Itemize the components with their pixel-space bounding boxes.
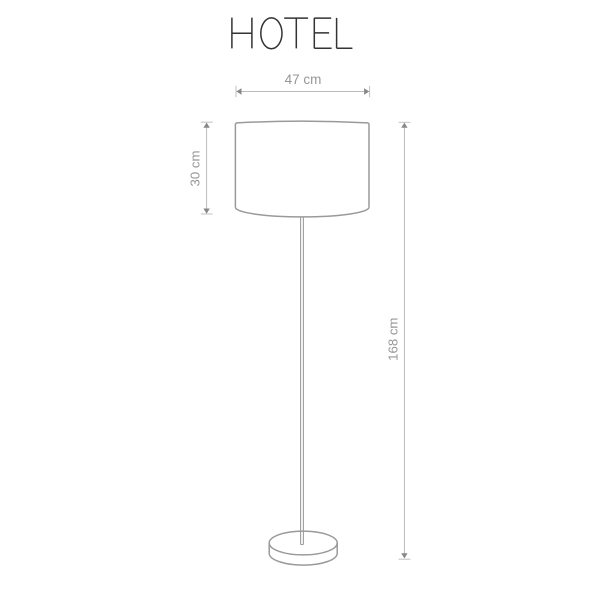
svg-text:168 cm: 168 cm [386,318,401,361]
svg-text:47 cm: 47 cm [285,72,322,87]
svg-text:30 cm: 30 cm [187,151,202,187]
